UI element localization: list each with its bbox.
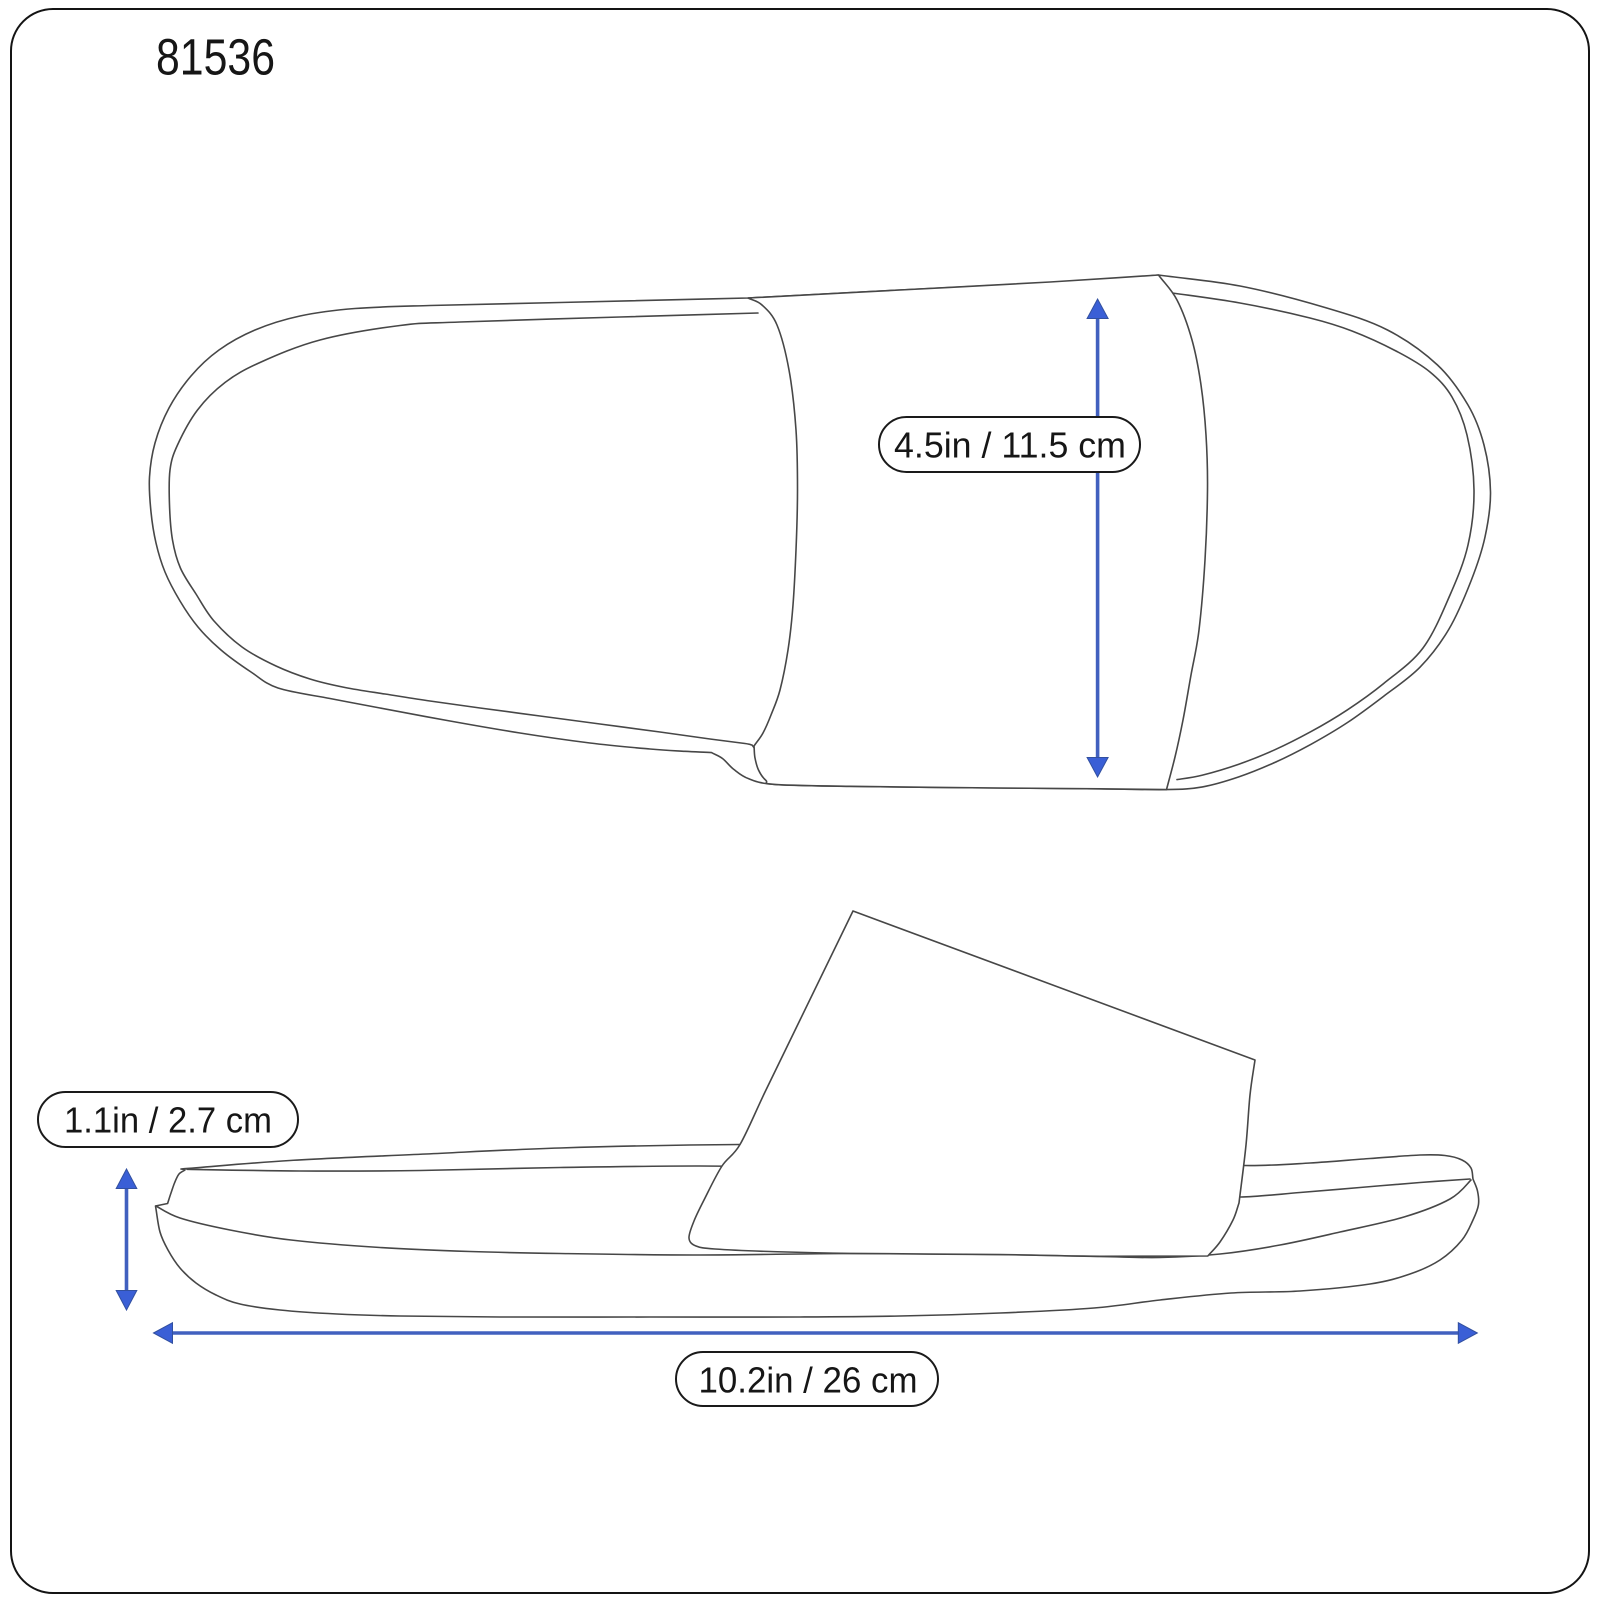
svg-text:1.1in / 2.7 cm: 1.1in / 2.7 cm	[64, 1100, 272, 1141]
svg-text:4.5in / 11.5 cm: 4.5in / 11.5 cm	[894, 425, 1126, 466]
svg-text:10.2in / 26 cm: 10.2in / 26 cm	[699, 1360, 918, 1401]
svg-text:81536: 81536	[156, 29, 275, 86]
